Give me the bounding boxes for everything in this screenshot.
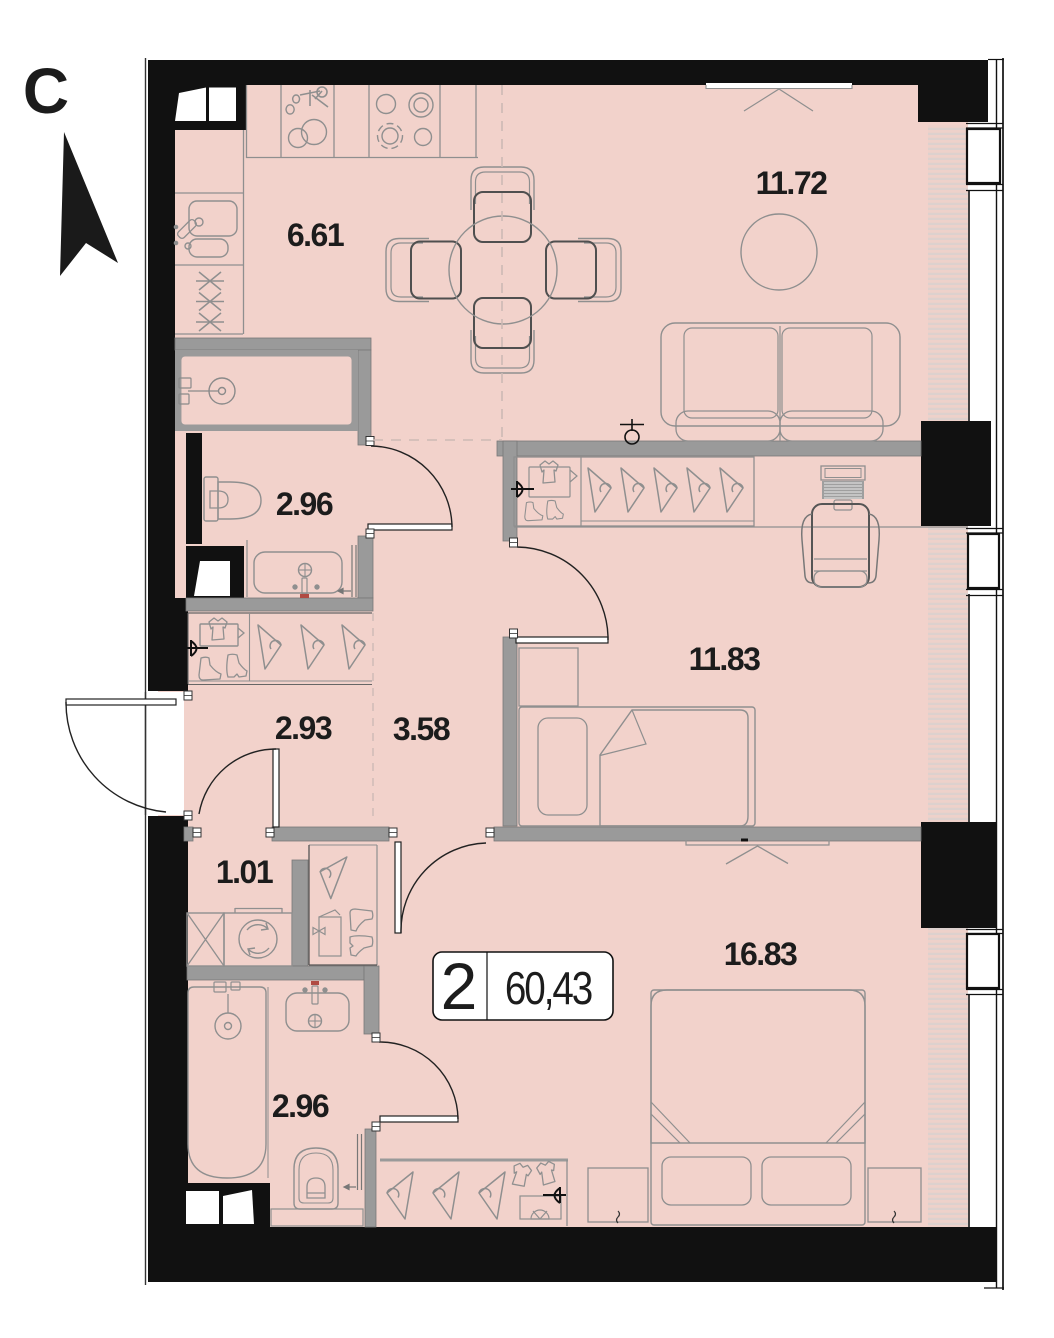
svg-text:2.96: 2.96 (272, 1088, 329, 1124)
svg-text:11.83: 11.83 (689, 641, 761, 677)
svg-text:6.61: 6.61 (287, 217, 344, 253)
svg-text:11.72: 11.72 (756, 165, 828, 201)
svg-text:1.01: 1.01 (216, 854, 273, 890)
svg-text:2: 2 (441, 949, 478, 1023)
svg-text:C: C (23, 55, 69, 127)
svg-text:60,43: 60,43 (505, 963, 592, 1014)
svg-text:3.58: 3.58 (393, 711, 450, 747)
svg-text:2.96: 2.96 (276, 486, 333, 522)
svg-text:2.93: 2.93 (275, 710, 332, 746)
svg-text:16.83: 16.83 (724, 936, 797, 972)
